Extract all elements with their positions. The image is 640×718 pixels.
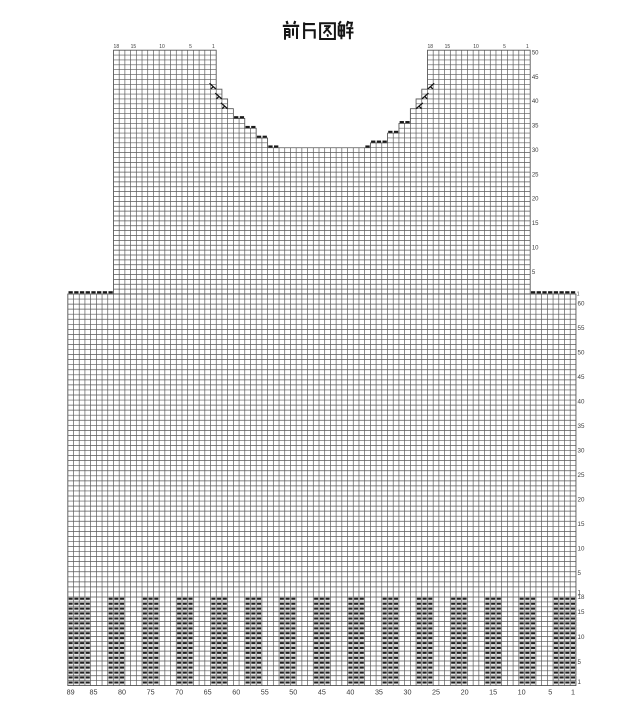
svg-text:20: 20 [461, 687, 469, 696]
svg-text:1: 1 [577, 292, 580, 298]
svg-text:85: 85 [89, 687, 97, 696]
svg-text:40: 40 [532, 99, 539, 105]
svg-text:45: 45 [318, 687, 326, 696]
svg-text:50: 50 [289, 687, 297, 696]
svg-text:15: 15 [532, 221, 539, 227]
svg-text:30: 30 [403, 687, 411, 696]
svg-text:5: 5 [189, 44, 192, 50]
svg-text:35: 35 [578, 423, 585, 430]
svg-text:40: 40 [346, 687, 354, 696]
svg-text:25: 25 [432, 687, 440, 696]
svg-text:20: 20 [532, 197, 539, 203]
svg-text:10: 10 [518, 687, 526, 696]
svg-text:30: 30 [578, 447, 585, 454]
svg-text:60: 60 [232, 687, 240, 696]
svg-text:5: 5 [548, 687, 552, 696]
svg-text:5: 5 [578, 659, 582, 666]
svg-text:18: 18 [114, 44, 120, 50]
svg-text:1: 1 [526, 44, 529, 50]
svg-text:15: 15 [445, 44, 451, 50]
svg-text:15: 15 [489, 687, 497, 696]
svg-text:10: 10 [578, 545, 585, 552]
svg-text:35: 35 [375, 687, 383, 696]
svg-text:89: 89 [67, 687, 75, 696]
svg-text:35: 35 [532, 124, 539, 130]
svg-text:15: 15 [578, 521, 585, 528]
svg-text:10: 10 [578, 634, 585, 641]
svg-text:45: 45 [532, 75, 539, 81]
svg-text:10: 10 [159, 44, 165, 50]
svg-text:1: 1 [212, 44, 215, 50]
svg-text:55: 55 [578, 325, 585, 332]
svg-text:25: 25 [532, 172, 539, 178]
svg-text:20: 20 [578, 496, 585, 503]
svg-text:45: 45 [578, 374, 585, 381]
svg-text:75: 75 [147, 687, 155, 696]
svg-text:30: 30 [532, 148, 539, 154]
svg-text:1: 1 [578, 679, 582, 686]
svg-text:60: 60 [578, 300, 585, 307]
svg-text:40: 40 [578, 398, 585, 405]
svg-text:15: 15 [131, 44, 137, 50]
svg-text:5: 5 [578, 570, 582, 577]
svg-text:50: 50 [578, 349, 585, 356]
svg-text:15: 15 [578, 609, 585, 616]
svg-text:18: 18 [428, 44, 434, 50]
svg-text:10: 10 [473, 44, 479, 50]
svg-text:65: 65 [204, 687, 212, 696]
svg-text:1: 1 [571, 687, 575, 696]
svg-text:55: 55 [261, 687, 269, 696]
svg-text:18: 18 [578, 594, 585, 601]
svg-text:70: 70 [175, 687, 183, 696]
svg-text:80: 80 [118, 687, 126, 696]
svg-text:50: 50 [532, 50, 539, 56]
svg-text:25: 25 [578, 472, 585, 479]
svg-text:10: 10 [532, 245, 539, 251]
svg-text:5: 5 [503, 44, 506, 50]
